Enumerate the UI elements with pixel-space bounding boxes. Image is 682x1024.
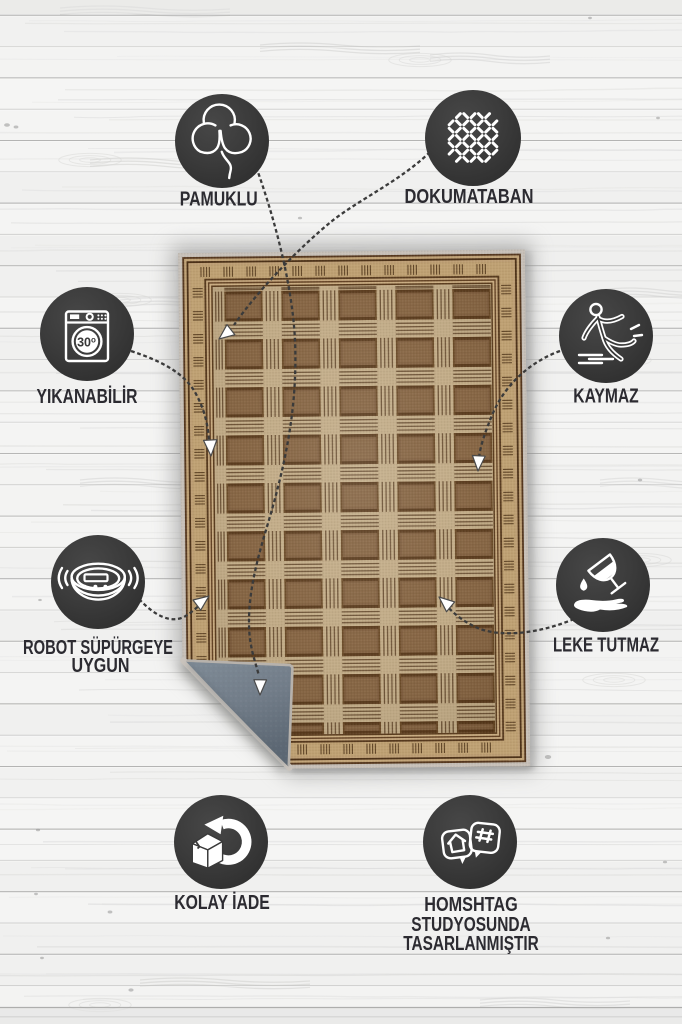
- svg-text:PAMUKLU: PAMUKLU: [180, 189, 258, 211]
- svg-text:TASARLANMIŞTIR: TASARLANMIŞTIR: [403, 933, 539, 955]
- svg-text:LEKE TUTMAZ: LEKE TUTMAZ: [553, 635, 659, 657]
- svg-text:DOKUMATABAN: DOKUMATABAN: [405, 186, 534, 208]
- svg-text:UYGUN: UYGUN: [72, 655, 130, 677]
- svg-text:KOLAY İADE: KOLAY İADE: [174, 891, 270, 914]
- svg-text:YIKANABİLİR: YIKANABİLİR: [37, 385, 138, 408]
- svg-text:KAYMAZ: KAYMAZ: [573, 386, 638, 408]
- svg-text:HOMSHTAG: HOMSHTAG: [424, 894, 518, 916]
